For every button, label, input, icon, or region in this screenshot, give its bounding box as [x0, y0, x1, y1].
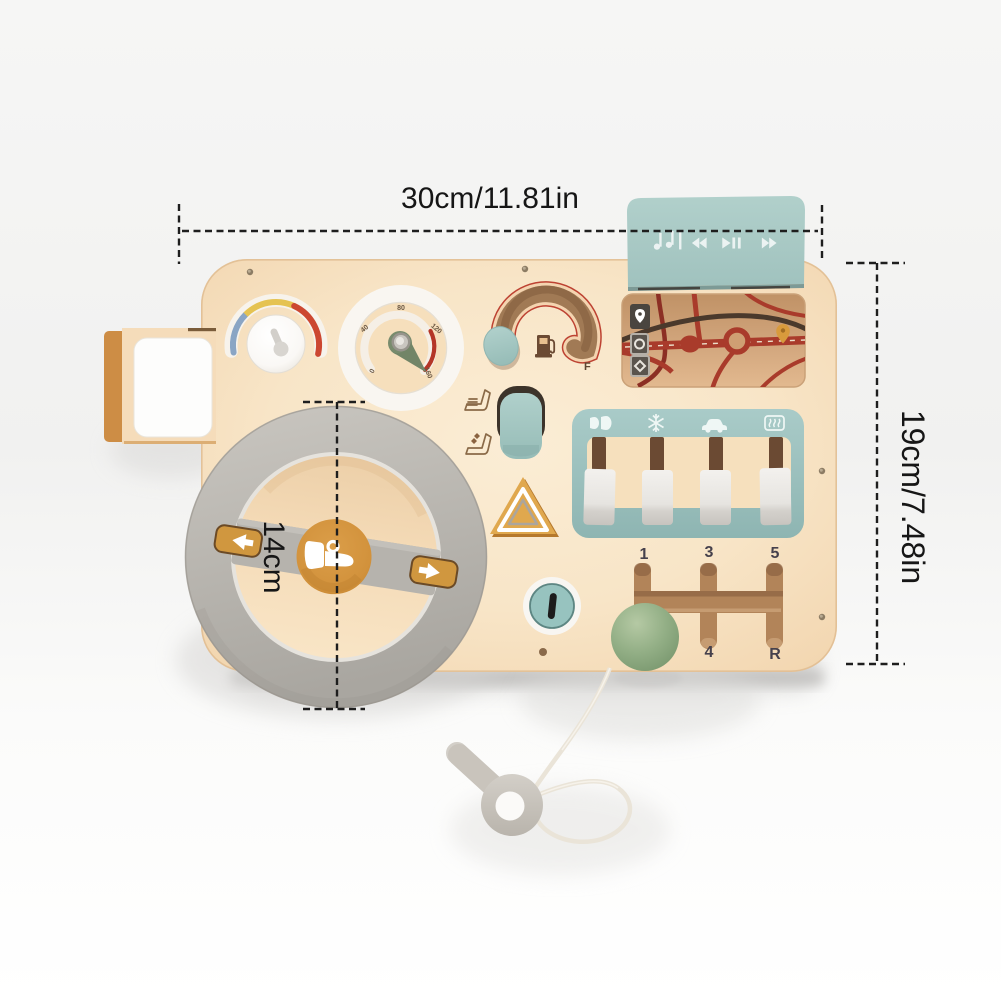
svg-text:5: 5 — [771, 545, 780, 562]
svg-text:19cm/7.48in: 19cm/7.48in — [895, 410, 931, 584]
svg-text:3: 3 — [705, 544, 714, 561]
svg-text:1: 1 — [640, 546, 649, 563]
svg-text:80: 80 — [397, 305, 405, 312]
svg-text:14cm: 14cm — [257, 520, 290, 593]
svg-text:F: F — [584, 361, 591, 373]
svg-text:4: 4 — [705, 644, 714, 661]
svg-text:R: R — [769, 646, 781, 663]
svg-text:30cm/11.81in: 30cm/11.81in — [401, 182, 579, 215]
